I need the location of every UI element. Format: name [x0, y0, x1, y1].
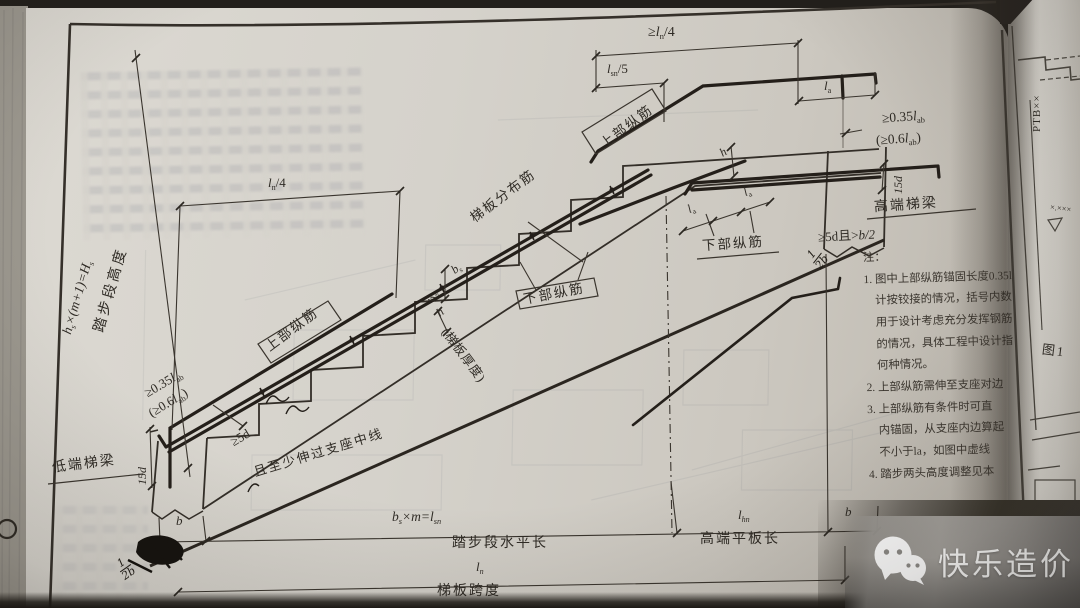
book-page-photo: ≥ln/4 lsn/5 la ≥0.35lab (≥0.6lab) 15d 高端…	[0, 0, 1080, 608]
note-line: 内锚固，从支座内边算起	[868, 417, 1021, 443]
dim-ln: ln	[476, 560, 484, 576]
dim-bsm-lsn: bs×m=lsn	[392, 510, 441, 526]
wechat-icon	[872, 534, 930, 588]
dim-la-top: la	[824, 79, 831, 95]
dim-ln4-top: ≥ln/4	[648, 26, 675, 41]
dim-ln4-left: ln/4	[268, 176, 286, 192]
dimension-lines	[135, 40, 884, 592]
anchorage-06-high: (≥0.6lab)	[875, 130, 921, 149]
note-line: 4. 踏步两头高度调整见本	[869, 461, 1022, 487]
watermark: 快乐造价	[872, 530, 1078, 592]
dim-hs: hs	[426, 293, 440, 302]
rebar-lines	[159, 74, 939, 487]
slab-soffit-line	[150, 240, 884, 566]
dim-lhn: lhn	[738, 508, 750, 524]
dim-5d-b2-high: ≥5d且>b/2	[818, 228, 876, 244]
watermark-text: 快乐造价	[938, 539, 1074, 584]
figure-caption: 图1	[1041, 343, 1066, 359]
dim-15d-low: 15d	[136, 467, 148, 485]
note-line: 2. 上部纵筋需伸至支座对边	[866, 374, 1019, 400]
dim-lsn5: lsn/5	[607, 62, 628, 78]
anchorage-035-high: ≥0.35lab	[881, 109, 925, 128]
run-length-label: 踏步段水平长	[452, 537, 548, 551]
dimension-ticks	[132, 39, 888, 596]
handwritten-scribble	[128, 535, 184, 572]
adjacent-elevation-value: ×.×××	[1050, 203, 1072, 214]
dim-15d-high: 15d	[892, 176, 904, 194]
adjacent-drawing-code: PTB××	[1032, 94, 1043, 132]
dim-b-left: b	[176, 514, 183, 527]
flat-plate-label: 高端平板长	[700, 533, 780, 547]
notes-block: 注： 1. 图中上部纵筋锚固长度0.35l 计按铰接的情况，括号内数 用于设计考…	[863, 244, 1022, 487]
